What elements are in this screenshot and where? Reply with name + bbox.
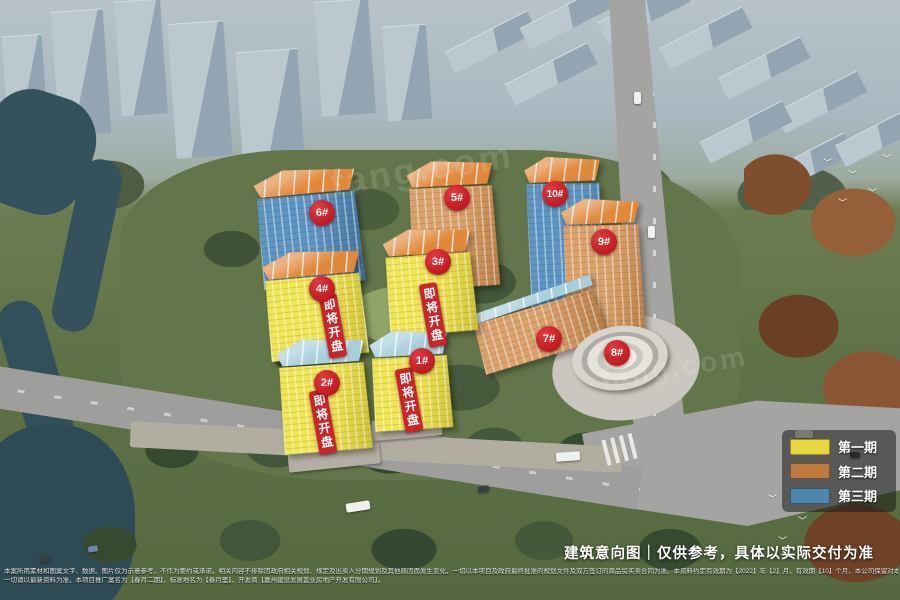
- building-badge-1: 1#: [409, 348, 435, 374]
- city-block: [167, 20, 232, 159]
- city-block: [114, 0, 168, 116]
- bus: [556, 451, 581, 462]
- tower-10-roof: [523, 154, 600, 184]
- legend-item-phase2: 第二期: [790, 462, 888, 481]
- bird-icon: ﹀: [768, 492, 777, 505]
- car: [478, 485, 490, 493]
- bird-icon: ﹀: [868, 186, 877, 199]
- bird-icon: ﹀: [798, 514, 807, 527]
- building-badge-6: 6#: [309, 200, 335, 226]
- disclaimer-line1: 本案所用素材和图案文字、数据、图片仅为示意参考，不作为要约或承诺，相关内容不排除…: [4, 568, 898, 577]
- city-block: [718, 36, 811, 99]
- city-block: [382, 24, 433, 122]
- phase3-label: 第三期: [838, 486, 877, 505]
- building-badge-9: 9#: [591, 229, 617, 255]
- phase1-label: 第一期: [838, 437, 877, 456]
- phase2-swatch: [790, 463, 830, 479]
- bird-icon: ﹀: [838, 196, 847, 209]
- phase-legend: 第一期 第二期 第三期: [782, 430, 896, 512]
- building-badge-3: 3#: [425, 249, 451, 275]
- tower-5-roof: [406, 157, 494, 189]
- aerial-masterplan-rendering: 6# 5# 10# 4# 3# 9# 2# 1# 7# 8# 即将开盘 即将开盘…: [0, 0, 900, 600]
- building-badge-2: 2#: [314, 370, 340, 396]
- legal-disclaimer: 本案所用素材和图案文字、数据、图片仅为示意参考，不作为要约或承诺，相关内容不排除…: [4, 568, 898, 585]
- legend-item-phase1: 第一期: [790, 437, 888, 456]
- car: [634, 92, 641, 104]
- city-block: [314, 0, 376, 117]
- disclaimer-line2: 一切请以最新资料为准，本项目推广案名为【春月二期】，标准地名为【春月里】，开发商…: [4, 577, 898, 586]
- city-block: [505, 42, 598, 105]
- building-badge-10: 10#: [542, 181, 568, 207]
- building-badge-7: 7#: [536, 326, 562, 352]
- building-badge-5: 5#: [444, 185, 470, 211]
- city-block: [660, 6, 753, 69]
- legend-item-phase3: 第三期: [790, 486, 888, 505]
- phase2-label: 第二期: [838, 462, 877, 481]
- rendering-caption: 建筑意向图｜仅供参考，具体以实际交付为准: [564, 542, 874, 563]
- city-block: [445, 10, 538, 73]
- tower-9-roof: [560, 196, 639, 226]
- building-badge-4: 4#: [309, 276, 335, 302]
- bird-icon: ﹀: [823, 156, 832, 169]
- bird-icon: ﹀: [882, 152, 891, 165]
- phase3-swatch: [790, 488, 830, 504]
- bird-icon: ﹀: [848, 168, 857, 181]
- phase1-swatch: [790, 439, 830, 455]
- building-badge-8: 8#: [604, 340, 630, 366]
- city-block: [775, 70, 868, 133]
- car: [648, 226, 655, 238]
